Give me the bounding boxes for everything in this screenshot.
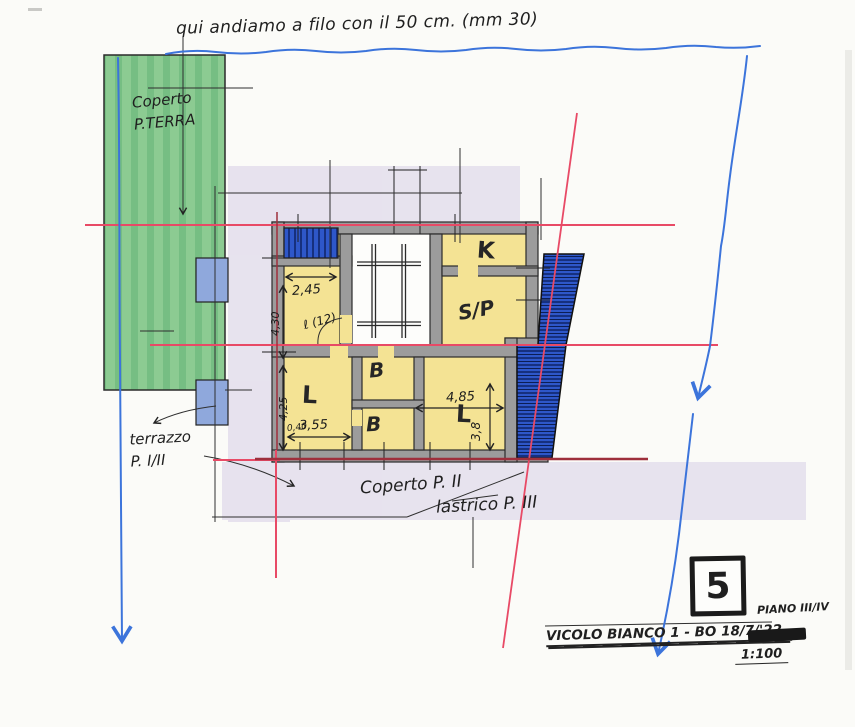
room-label-kitchen: K: [476, 237, 496, 264]
dimension-4-30: 4,30: [269, 312, 282, 337]
dimension-3-55: 3,55: [299, 417, 328, 433]
sheet-number-box: 5: [689, 556, 746, 617]
room-label-bagno-2: B: [365, 412, 381, 437]
room-label-bagno-1: B: [368, 357, 385, 382]
scale-label: 1:100: [735, 646, 789, 665]
room-label-letto-1: L: [301, 381, 318, 410]
label-coperto-pterra: Coperto P.TERRA: [131, 87, 196, 136]
dimension-2-45: 2,45: [292, 282, 322, 299]
sheet-number: 5: [705, 565, 731, 606]
label-terrazzo-line1: terrazzo: [129, 426, 192, 451]
label-terrazzo-line2: P. I/II: [130, 448, 193, 473]
dimension-4-25: 4,25: [277, 397, 290, 422]
dimension-3-8: 3,8: [469, 422, 483, 441]
dimension-4-85: 4,85: [446, 389, 476, 405]
sketch-page: qui andiamo a filo con il 50 cm. (mm 30)…: [0, 0, 855, 727]
plan-drawing: [0, 0, 855, 727]
label-terrazzo: terrazzo P. I/II: [129, 426, 193, 473]
